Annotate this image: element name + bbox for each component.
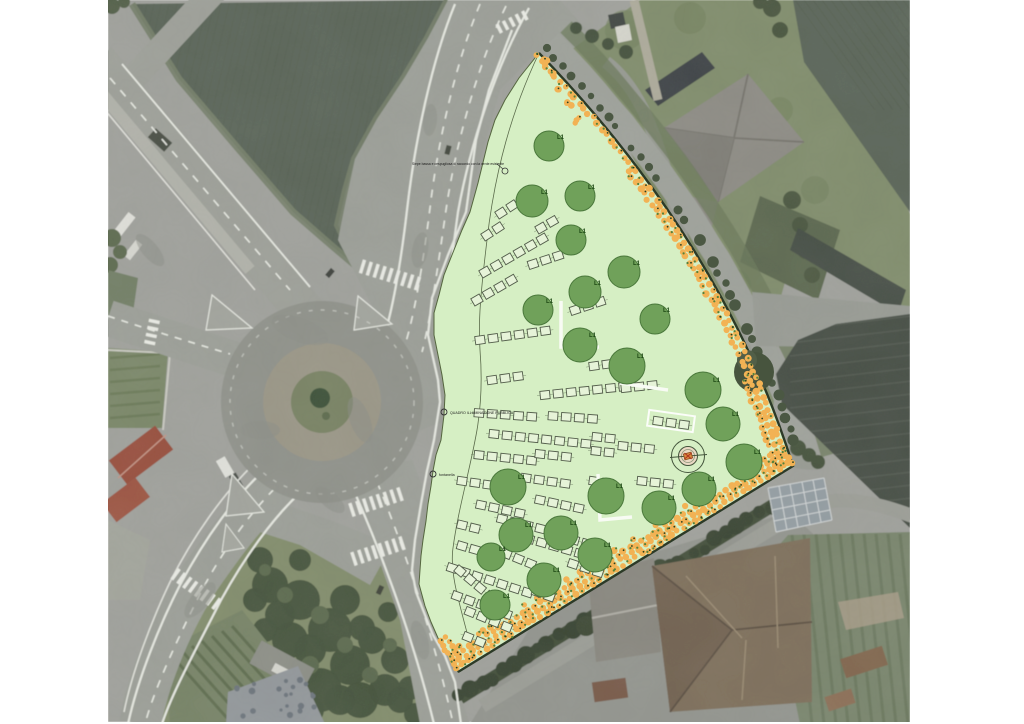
svg-text:L1: L1 xyxy=(541,190,549,196)
svg-text:L1: L1 xyxy=(637,354,645,360)
svg-text:L1: L1 xyxy=(525,523,533,529)
svg-text:L1: L1 xyxy=(732,412,740,418)
svg-text:L1: L1 xyxy=(754,450,762,456)
svg-text:L1: L1 xyxy=(588,185,596,191)
svg-text:L1: L1 xyxy=(633,261,641,267)
svg-text:L1: L1 xyxy=(546,299,554,305)
svg-text:L1: L1 xyxy=(557,135,565,141)
svg-text:L1: L1 xyxy=(708,477,716,483)
svg-text:L1: L1 xyxy=(589,333,597,339)
svg-text:L1: L1 xyxy=(579,229,587,235)
svg-text:L1: L1 xyxy=(570,521,578,527)
svg-text:L1: L1 xyxy=(518,475,526,481)
svg-text:L1: L1 xyxy=(668,496,676,502)
svg-text:L1: L1 xyxy=(713,378,721,384)
svg-text:QUADRO ILLUMINAZIONE PUBBLICA: QUADRO ILLUMINAZIONE PUBBLICA xyxy=(450,411,514,415)
svg-text:L1: L1 xyxy=(604,543,612,549)
svg-text:L1: L1 xyxy=(553,568,561,574)
svg-text:L1: L1 xyxy=(499,547,507,553)
svg-text:L1: L1 xyxy=(616,484,624,490)
svg-text:fontanella: fontanella xyxy=(439,473,455,477)
svg-text:L1: L1 xyxy=(663,308,671,314)
svg-text:Siepe bassa e cespugliosa di r: Siepe bassa e cespugliosa di raccordo co… xyxy=(412,162,504,166)
svg-text:L1: L1 xyxy=(503,594,511,600)
svg-text:L1: L1 xyxy=(594,281,602,287)
